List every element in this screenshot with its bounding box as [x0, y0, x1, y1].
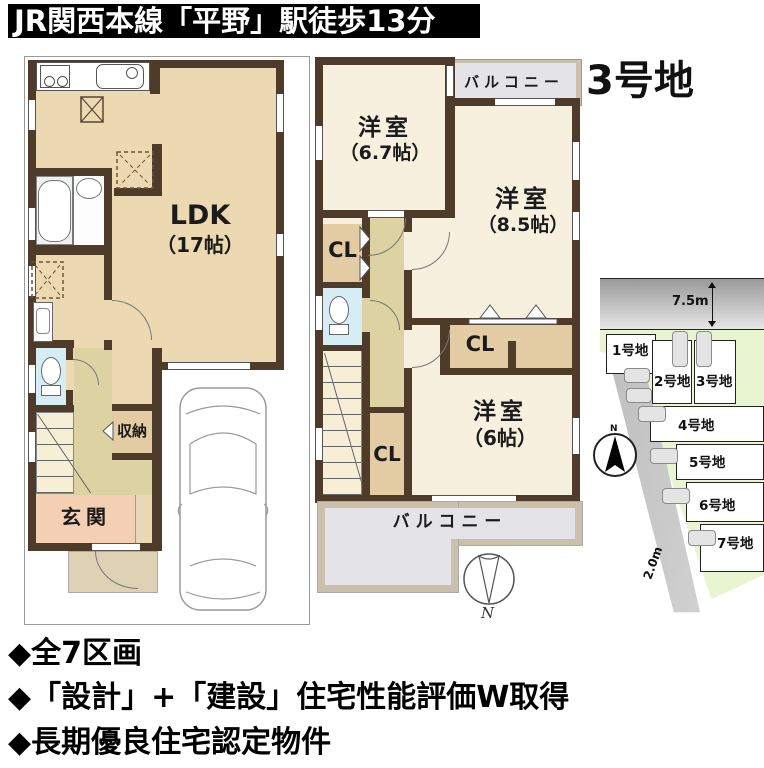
- car-icon: [672, 331, 688, 367]
- toilet-bowl-icon: [329, 296, 349, 324]
- window: [276, 234, 284, 256]
- vanity-sink-icon: [36, 308, 50, 334]
- floor1-wall: [112, 404, 160, 411]
- floor1-wall: [150, 60, 160, 94]
- feature-line-1: ◆全7区画: [8, 628, 142, 672]
- faucet-icon: [126, 67, 138, 79]
- room-label-ldk: LDK （17帖）: [150, 200, 250, 257]
- lot-label-1: 1号地: [612, 339, 648, 359]
- floor1-wall: [28, 245, 112, 255]
- closet-upper-label: CL: [452, 332, 508, 358]
- flyer: JR関西本線「平野」駅徒歩13分 3号地: [0, 0, 764, 768]
- lot-label-6: 6号地: [699, 494, 735, 514]
- floor1-partition: [72, 176, 74, 245]
- floor2-wall: [440, 368, 580, 375]
- window: [28, 208, 36, 240]
- compass-icon: [462, 552, 516, 606]
- sliding-window: [168, 362, 250, 370]
- floor1-wall: [66, 390, 73, 405]
- sliding-window: [495, 98, 555, 106]
- bathtub-icon: [38, 180, 71, 242]
- toilet-tank-icon: [329, 324, 349, 335]
- window: [315, 296, 323, 330]
- lot-label-2: 2号地: [654, 370, 690, 390]
- room-c-name: 洋室: [440, 398, 560, 426]
- room-label-a: 洋室 （6.7帖）: [335, 114, 435, 165]
- burner-icon: [57, 76, 68, 87]
- ldk-name: LDK: [150, 200, 250, 233]
- site-compass-icon: [592, 432, 638, 478]
- car-icon: [662, 488, 690, 504]
- door-opening: [404, 232, 412, 270]
- ldk-size: （17帖）: [150, 233, 250, 257]
- floor2-wall: [508, 341, 516, 368]
- window: [572, 142, 580, 180]
- lot-label-5: 5号地: [689, 451, 725, 471]
- car-icon: [626, 388, 652, 403]
- window: [315, 428, 323, 460]
- window: [28, 432, 36, 462]
- floor1-stairs: [36, 412, 74, 494]
- room-a-size: （6.7帖）: [335, 142, 435, 165]
- balcony-bottom-label: バルコニー: [360, 512, 540, 533]
- closet-lower-label: CL: [370, 442, 404, 466]
- station-access-banner: JR関西本線「平野」駅徒歩13分: [8, 4, 480, 38]
- feature-line-3: ◆長期優良住宅認定物件: [8, 717, 331, 761]
- washbasin-icon: [76, 178, 102, 199]
- door-opening: [404, 330, 412, 368]
- car-icon: [638, 406, 666, 422]
- floor1-wall: [104, 340, 112, 350]
- window: [572, 418, 580, 454]
- car-icon: [688, 530, 716, 546]
- hatch-box-icon: [80, 96, 104, 123]
- station-access-text: JR関西本線「平野」駅徒歩13分: [14, 4, 435, 38]
- room-c-size: （6帖）: [440, 426, 560, 450]
- car-icon: [176, 384, 270, 614]
- floor2-wall: [362, 407, 408, 413]
- toilet-tank-icon: [41, 385, 61, 396]
- site-compass-north-label: N: [610, 424, 618, 434]
- room-label-b: 洋室 （8.5帖）: [468, 185, 578, 237]
- floor2-wall: [315, 282, 370, 288]
- room-a-name: 洋室: [335, 114, 435, 142]
- floor2-wall: [315, 345, 370, 351]
- lot-label-4: 4号地: [678, 414, 714, 434]
- window: [28, 365, 36, 393]
- room-label-entrance: 玄関: [36, 505, 136, 529]
- lot-label-7: 7号地: [717, 532, 753, 552]
- window: [315, 126, 323, 160]
- floor2-wall: [315, 57, 455, 65]
- floor1-wall: [28, 405, 74, 412]
- floor1-hallway: [112, 460, 152, 495]
- burner-icon: [44, 76, 55, 87]
- door-opening: [104, 300, 112, 340]
- lot-label-3: 3号地: [696, 370, 732, 390]
- dashed-box-icon: [31, 261, 64, 299]
- feature-line-2: ◆「設計」+「建設」住宅性能評価W取得: [8, 672, 569, 716]
- car-icon: [624, 368, 650, 383]
- floor1-wall: [66, 348, 73, 360]
- arrow-down-icon: [708, 321, 716, 327]
- floor1-wall: [104, 168, 112, 300]
- floor1-wall: [112, 453, 160, 460]
- closet-folding-doors-icon: [468, 303, 558, 325]
- floor1-wall: [114, 188, 162, 196]
- car-icon: [696, 331, 712, 367]
- floor1-wall: [152, 348, 162, 551]
- road-top-width-label: 7.5m: [672, 294, 709, 309]
- room-label-c: 洋室 （6帖）: [440, 398, 560, 450]
- floor1-wall: [28, 168, 112, 176]
- arrow-up-icon: [708, 282, 716, 288]
- closet-left-label: CL: [323, 238, 362, 264]
- floor1-entrance-step: [135, 495, 143, 543]
- toilet-bowl-icon: [41, 357, 61, 385]
- dashed-box-icon: [116, 151, 154, 189]
- room-b-size: （8.5帖）: [468, 214, 578, 237]
- balcony-top-label: バルコニー: [452, 73, 576, 91]
- front-door-opening: [92, 543, 140, 551]
- compass-north-label: N: [481, 604, 494, 622]
- door-opening: [368, 210, 404, 218]
- room-label-storage: 収納: [112, 422, 152, 440]
- window: [28, 100, 36, 130]
- road-width-arrow: [712, 284, 713, 326]
- page-title: 3号地: [586, 48, 694, 106]
- car-icon: [650, 448, 678, 464]
- window: [276, 94, 284, 132]
- door-opening: [362, 298, 370, 332]
- room-b-name: 洋室: [468, 185, 578, 214]
